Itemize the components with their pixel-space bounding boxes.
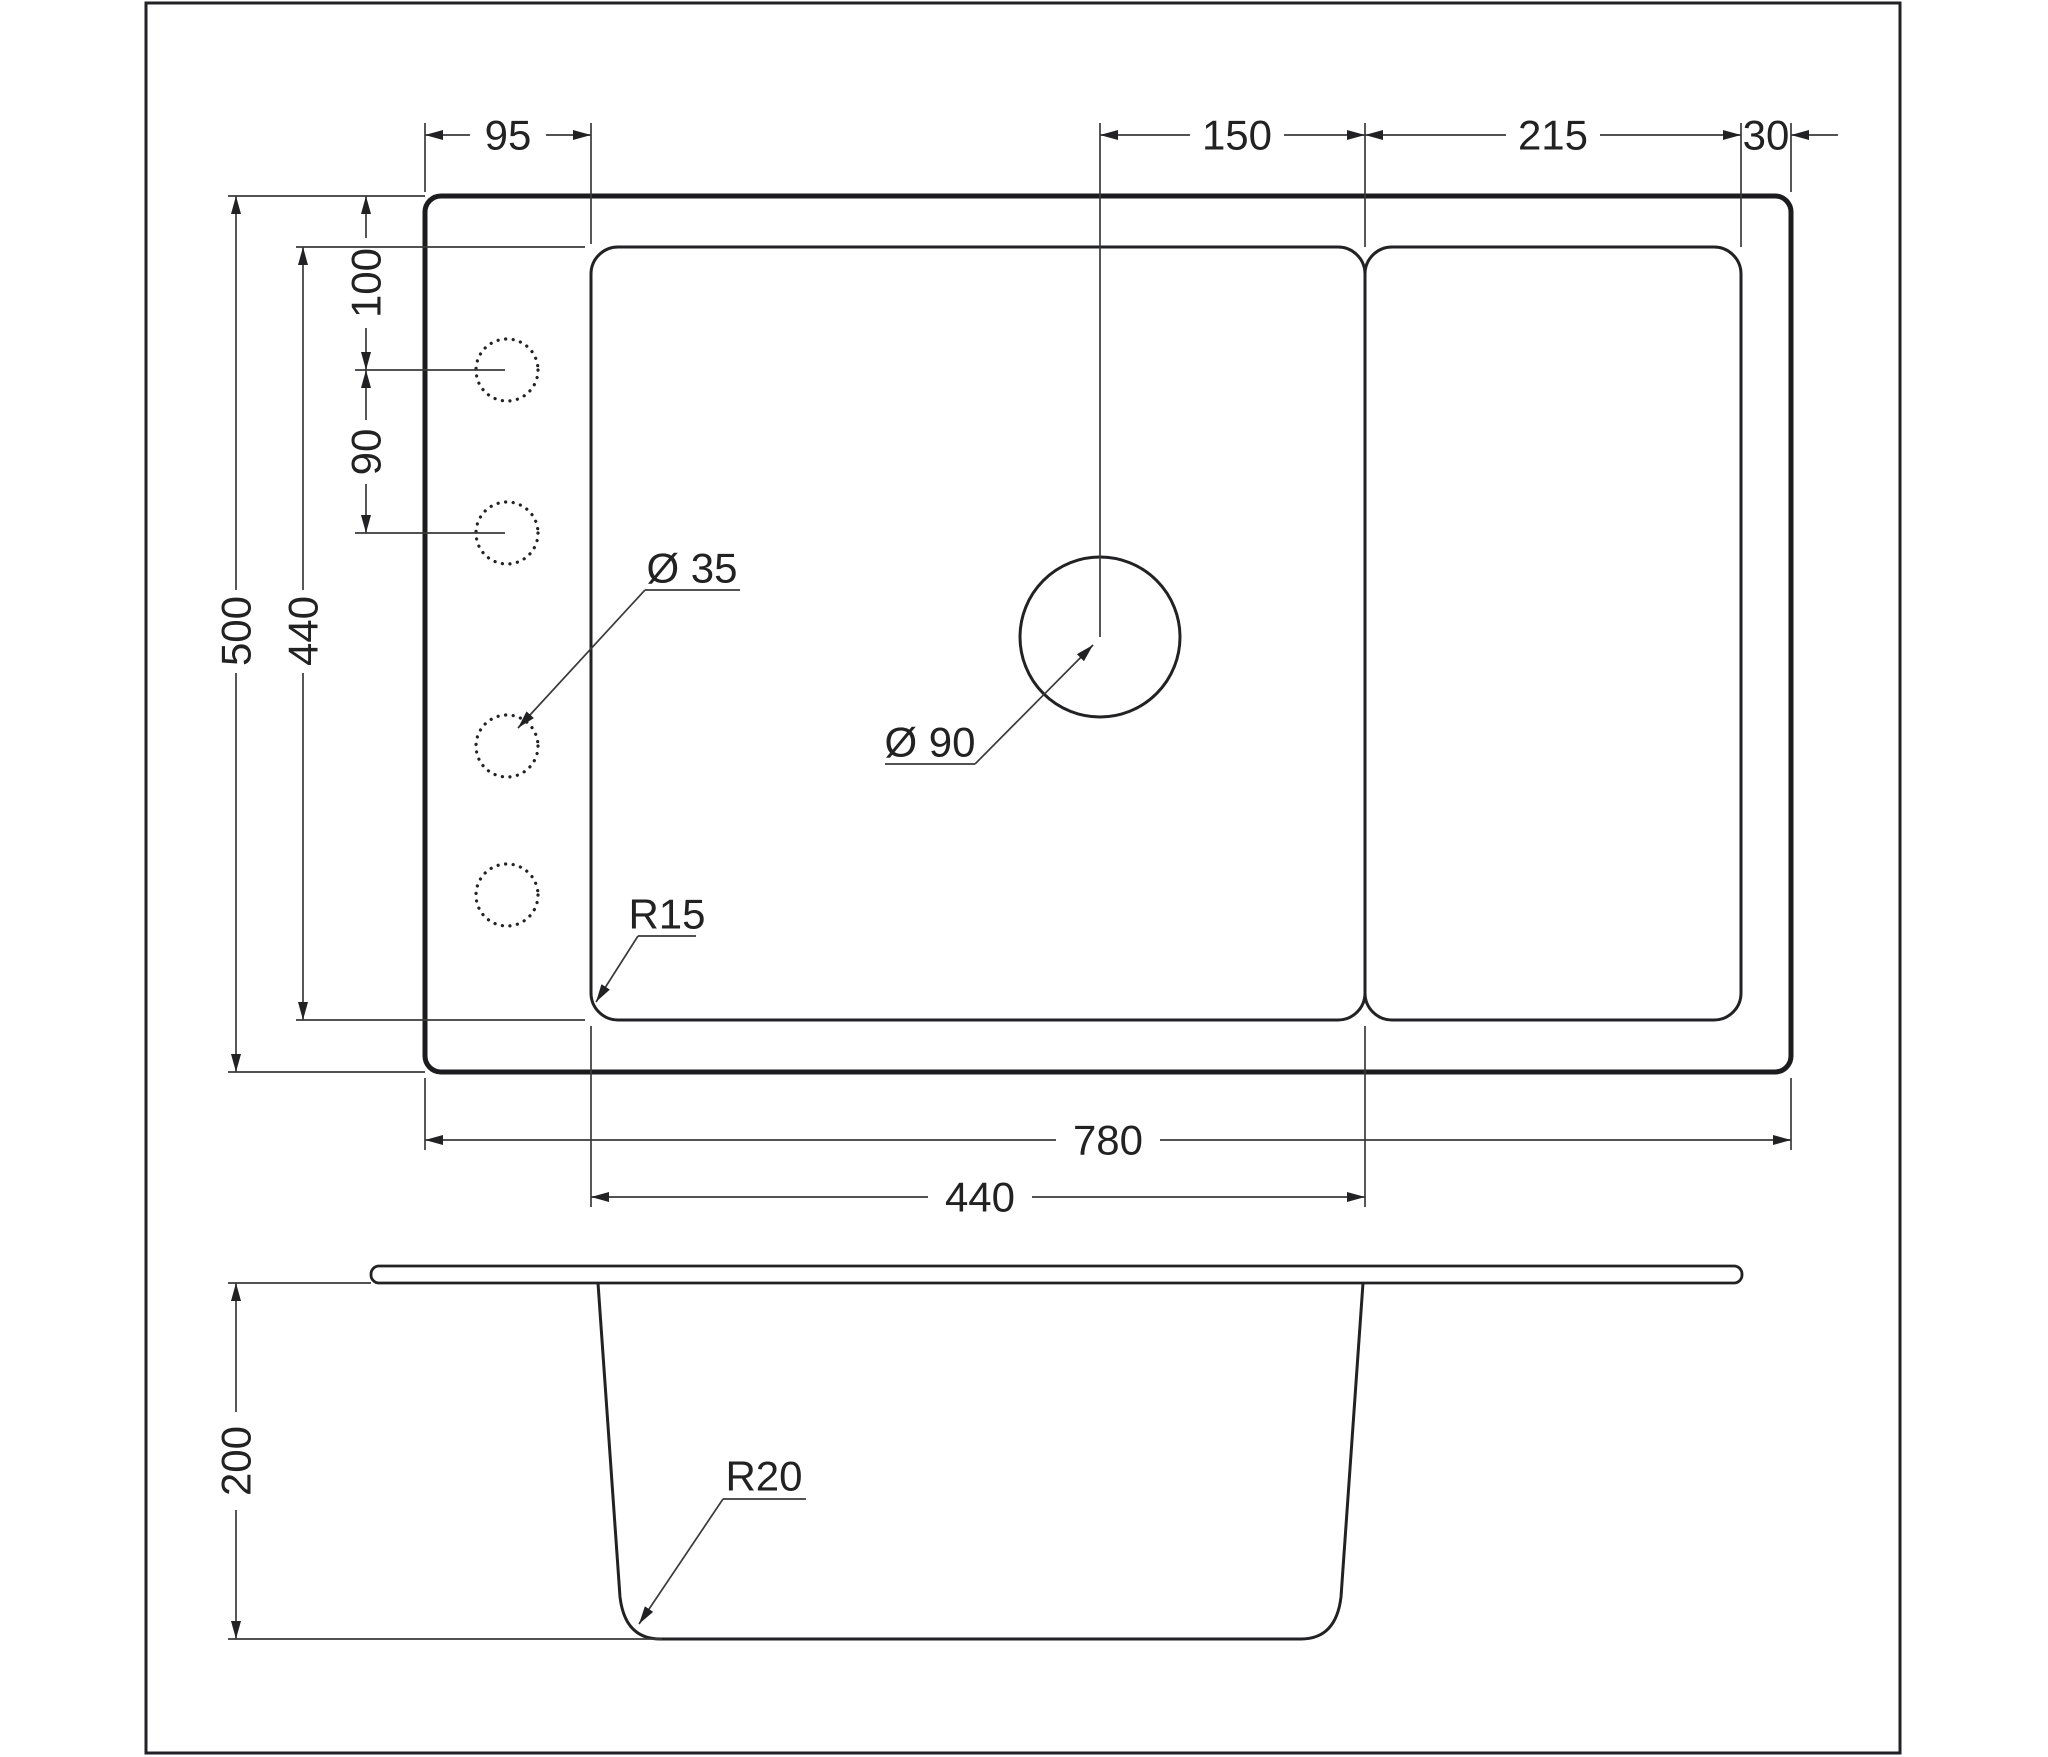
callout-leader-tap-hole [518,590,645,728]
callout-leader-drain [975,645,1093,764]
callout-label-drain-diameter: Ø 90 [884,719,975,766]
section-view: 200 R20 [213,1266,1743,1639]
sink-outer-outline [425,196,1791,1072]
tap-hole-4 [476,864,538,926]
sink-drainer-outline [1365,247,1741,1020]
tap-hole-3 [476,715,538,777]
section-rim-slab [371,1266,1742,1283]
callout-leader-r20 [639,1499,723,1624]
bottom-dimensions: 780 440 [425,1026,1791,1221]
dim-label-200: 200 [213,1426,260,1496]
dim-label-90: 90 [343,429,390,476]
dim-label-95: 95 [485,112,532,159]
top-dimensions: 95 150 215 30 [425,112,1838,638]
page-border-frame [146,3,1900,1753]
left-dimensions: 500 440 100 90 [213,196,586,1072]
callout-label-tap-hole-diameter: Ø 35 [646,545,737,592]
dim-label-30: 30 [1743,112,1790,159]
callout-label-bottom-corner-radius: R20 [725,1453,802,1500]
dim-label-150: 150 [1202,112,1272,159]
sink-bowl-outline [591,247,1365,1020]
dim-label-100: 100 [343,248,390,318]
dim-label-780: 780 [1073,1117,1143,1164]
dim-label-440-vertical: 440 [280,596,327,666]
section-bowl-profile [598,1283,1363,1639]
plan-view: 95 150 215 30 500 [213,112,1839,1221]
dim-label-440-bottom: 440 [945,1174,1015,1221]
callout-label-bowl-corner-radius: R15 [628,891,705,938]
plan-callouts: Ø 35 Ø 90 R15 [518,545,1093,1003]
dim-label-500: 500 [213,596,260,666]
drawing-page: 95 150 215 30 500 [0,0,2048,1757]
dim-label-215: 215 [1518,112,1588,159]
callout-leader-r15 [596,936,638,1002]
sink-technical-drawing: 95 150 215 30 500 [0,0,2048,1757]
